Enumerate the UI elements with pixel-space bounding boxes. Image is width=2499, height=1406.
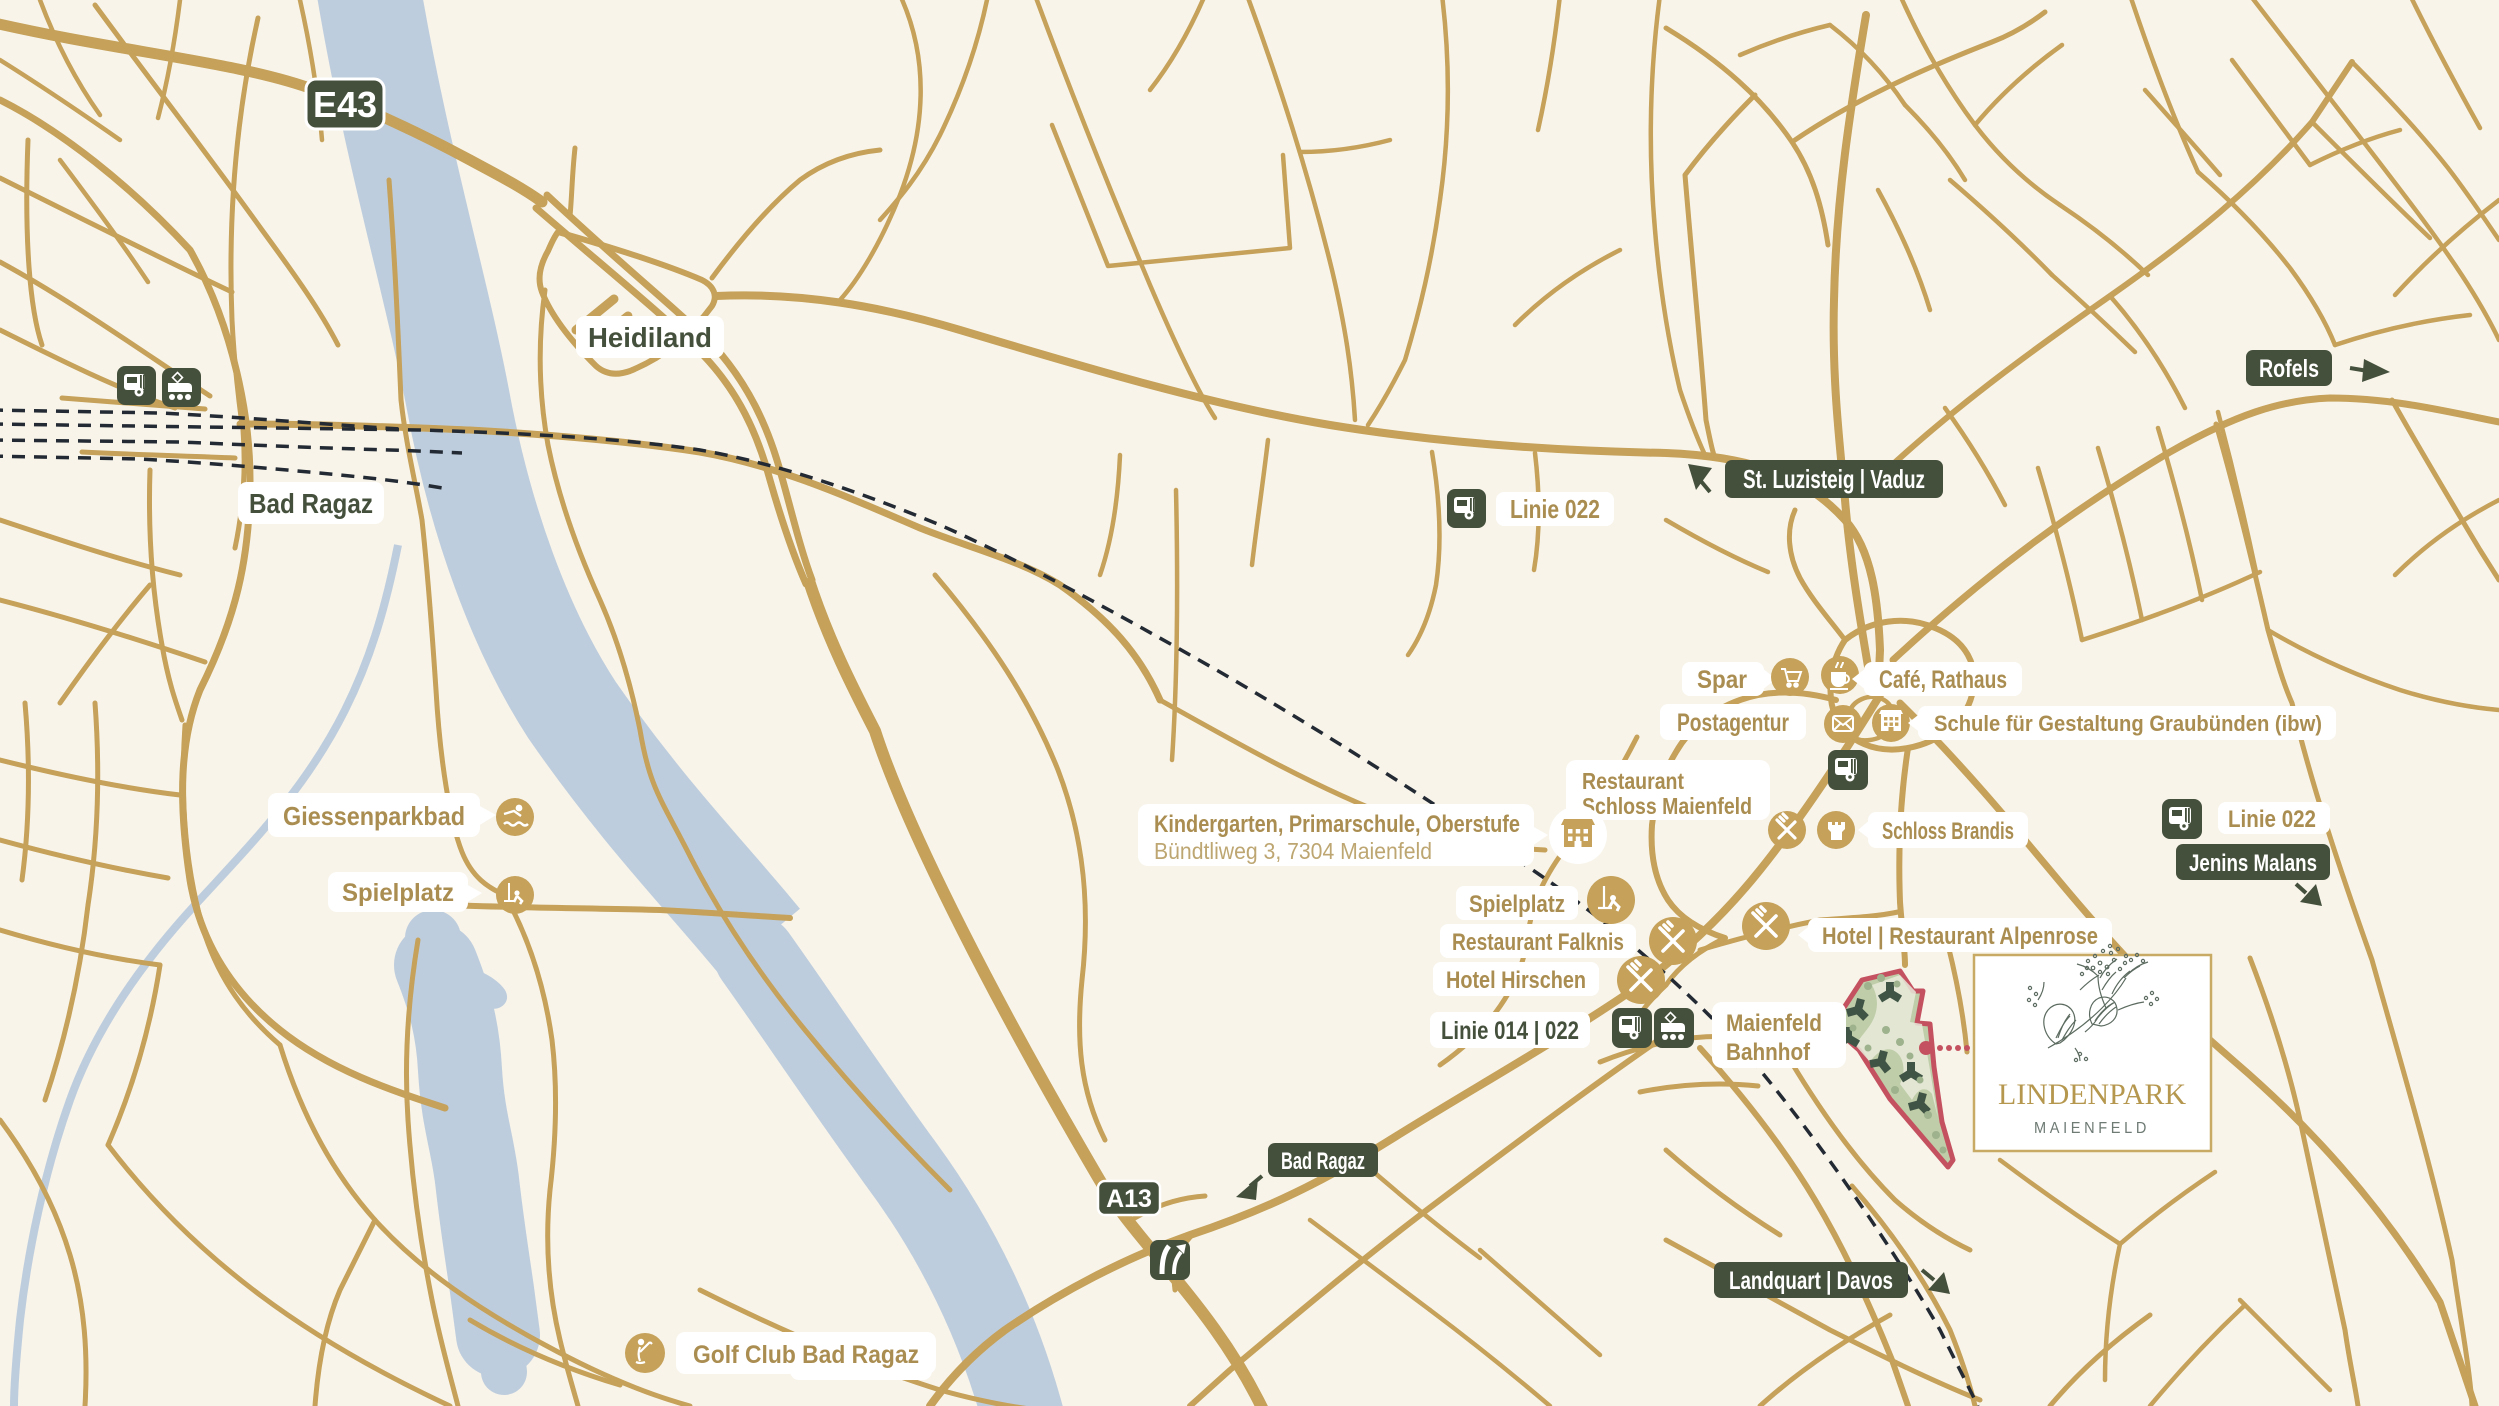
svg-text:Schloss Brandis: Schloss Brandis: [1882, 818, 2014, 845]
svg-text:Schule für Gestaltung Graubünd: Schule für Gestaltung Graubünden (ibw): [1934, 711, 2322, 736]
svg-text:Jenins Malans: Jenins Malans: [2189, 850, 2317, 877]
svg-text:Giessenparkbad: Giessenparkbad: [283, 801, 465, 831]
svg-text:Spielplatz: Spielplatz: [1469, 891, 1565, 918]
svg-text:St. Luzisteig | Vaduz: St. Luzisteig | Vaduz: [1743, 464, 1925, 494]
svg-text:Rofels: Rofels: [2259, 355, 2319, 383]
svg-text:Restaurant: Restaurant: [1582, 768, 1684, 794]
svg-text:E43: E43: [313, 84, 377, 125]
svg-text:Maienfeld: Maienfeld: [1726, 1010, 1822, 1037]
svg-text:Bahnhof: Bahnhof: [1726, 1039, 1811, 1066]
svg-text:Bad Ragaz: Bad Ragaz: [1281, 1148, 1365, 1175]
svg-text:A13: A13: [1106, 1185, 1152, 1213]
svg-text:Bündtliweg 3, 7304 Maienfeld: Bündtliweg 3, 7304 Maienfeld: [1154, 838, 1432, 864]
svg-text:Linie 014 | 022: Linie 014 | 022: [1441, 1017, 1579, 1045]
svg-text:Kindergarten, Primarschule, Ob: Kindergarten, Primarschule, Oberstufe: [1154, 811, 1520, 838]
svg-text:Landquart | Davos: Landquart | Davos: [1729, 1267, 1893, 1295]
svg-text:Postagentur: Postagentur: [1677, 709, 1789, 737]
svg-text:Hotel Hirschen: Hotel Hirschen: [1446, 967, 1586, 994]
svg-text:Linie 022: Linie 022: [2228, 806, 2316, 833]
svg-text:MAIENFELD: MAIENFELD: [2034, 1120, 2150, 1137]
svg-text:LINDENPARK: LINDENPARK: [1998, 1078, 2186, 1111]
svg-text:Restaurant Falknis: Restaurant Falknis: [1452, 929, 1624, 956]
svg-text:Bad Ragaz: Bad Ragaz: [249, 488, 373, 519]
svg-text:Café, Rathaus: Café, Rathaus: [1879, 666, 2007, 694]
svg-text:Schloss Maienfeld: Schloss Maienfeld: [1582, 793, 1752, 819]
svg-text:Spielplatz: Spielplatz: [342, 879, 454, 907]
svg-text:Hotel | Restaurant Alpenrose: Hotel | Restaurant Alpenrose: [1822, 923, 2098, 950]
svg-text:Golf Club Bad Ragaz: Golf Club Bad Ragaz: [693, 1341, 919, 1369]
svg-text:Spar: Spar: [1697, 666, 1747, 694]
svg-text:Heidiland: Heidiland: [588, 322, 712, 353]
svg-text:Linie 022: Linie 022: [1510, 494, 1600, 524]
